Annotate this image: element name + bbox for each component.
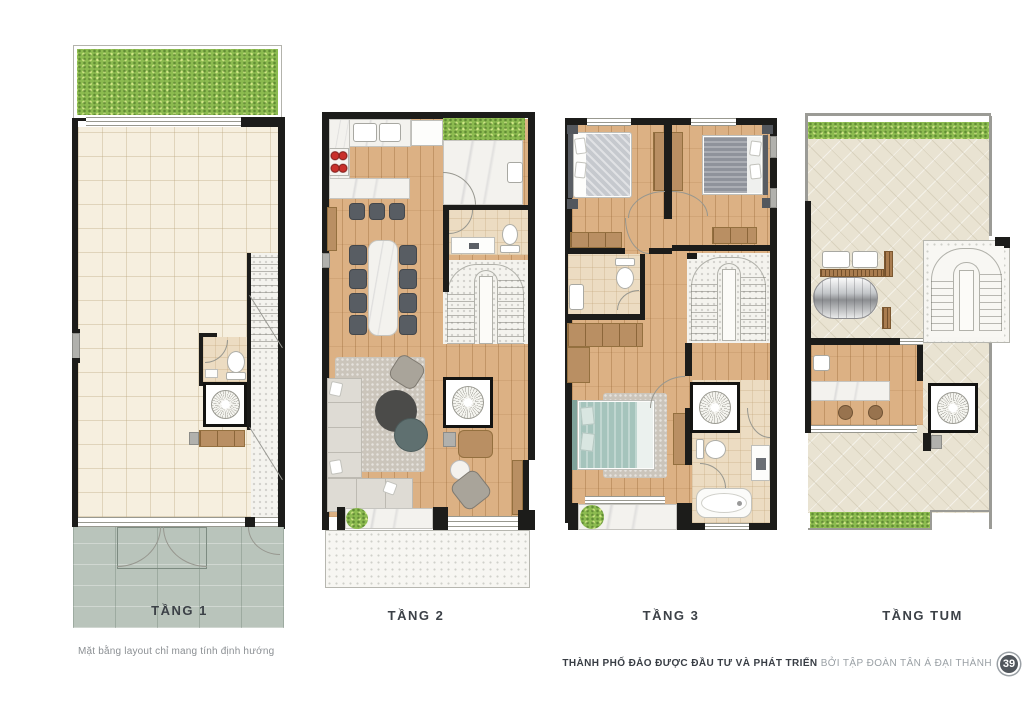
nightstand: [567, 125, 578, 134]
stool: [868, 405, 883, 420]
toilet-tank: [500, 245, 520, 253]
wall: [199, 333, 203, 386]
wall: [687, 253, 697, 259]
parapet: [808, 528, 930, 530]
wall: [72, 358, 80, 363]
drawer-chest: [570, 232, 622, 248]
window-marker: [189, 432, 199, 445]
tub-drain: [737, 501, 742, 506]
bed-duvet: [586, 134, 630, 196]
laundry-sink-icon: [507, 162, 523, 183]
toilet-icon: [227, 351, 245, 373]
fan-icon: [452, 386, 484, 419]
floor-label-tang-tum: TẦNG TUM: [830, 608, 1015, 623]
stair-treads: [447, 290, 474, 344]
floor-label-tang-2: TẦNG 2: [316, 608, 516, 623]
bar-counter: [811, 381, 890, 401]
wall: [805, 338, 900, 345]
hedge-strip: [808, 122, 989, 139]
hedge-strip: [810, 512, 930, 528]
disclaimer-text: Mặt bằng layout chỉ mang tính định hướng: [78, 646, 274, 657]
page-number-badge: 39: [998, 653, 1020, 675]
bar-stool: [349, 203, 365, 220]
wall-center: [664, 118, 672, 219]
window-marker: [443, 432, 456, 447]
fan-icon: [699, 391, 731, 424]
nightstand: [567, 199, 578, 209]
dining-chair: [399, 245, 417, 265]
wall-right: [278, 118, 285, 529]
floorplan-tang-2: [322, 112, 535, 592]
window-marker: [770, 188, 777, 208]
wall: [433, 507, 448, 530]
kitchen-sink-icon: [353, 123, 377, 142]
wash-sink-icon: [852, 251, 878, 268]
vanity-counter: [751, 445, 770, 481]
nightstand: [762, 125, 773, 134]
shelf: [884, 251, 893, 277]
floor-label-tang-3: TẦNG 3: [565, 608, 777, 623]
credit-line: THÀNH PHỐ ĐẢO ĐƯỢC ĐẦU TƯ VÀ PHÁT TRIỂN …: [520, 658, 992, 669]
bench: [458, 430, 493, 458]
parapet: [930, 510, 991, 512]
wall: [443, 260, 449, 292]
stair-landing: [722, 269, 736, 341]
tv-cabinet: [512, 460, 523, 515]
parapet: [989, 343, 992, 529]
pillow: [574, 137, 587, 154]
stair-landing: [479, 276, 493, 344]
dining-chair: [399, 293, 417, 313]
plant-icon: [580, 505, 604, 529]
credit-bold: THÀNH PHỐ ĐẢO ĐƯỢC ĐẦU TƯ VÀ PHÁT TRIỂN: [562, 658, 817, 669]
wall-right: [528, 118, 535, 460]
dining-chair: [349, 315, 367, 335]
window-band: [811, 425, 917, 433]
wall: [245, 517, 255, 527]
planter-strip: [443, 118, 525, 140]
skylight-fan-box: [203, 382, 247, 427]
kitchen-cabinet: [411, 120, 443, 146]
bathtub-icon: [696, 488, 752, 518]
plant-icon: [346, 508, 368, 529]
stair-treads: [741, 271, 766, 341]
grass-lawn: [77, 49, 278, 115]
skylight-fan-box: [690, 382, 740, 433]
stair-treads: [498, 278, 524, 344]
balcony-sliding-door: [585, 496, 665, 504]
headboard: [763, 135, 768, 195]
window: [705, 523, 749, 530]
bar-stool: [369, 203, 385, 220]
wall: [565, 314, 645, 320]
dining-chair: [399, 315, 417, 335]
pillow: [329, 459, 343, 475]
wall: [677, 503, 692, 530]
brochure-page: { "page": {"width": 1024, "height": 712,…: [0, 0, 1024, 712]
parapet: [989, 116, 992, 236]
parapet: [805, 113, 991, 116]
wall: [685, 343, 692, 376]
bar-stool: [389, 203, 405, 220]
kitchen-sink-icon: [379, 123, 401, 142]
pillow: [574, 161, 587, 178]
stair-treads: [691, 283, 717, 341]
drawer-chest: [712, 227, 757, 244]
stair-treads: [980, 272, 1002, 331]
stool: [838, 405, 853, 420]
window-marker: [322, 253, 330, 268]
window: [587, 118, 631, 126]
wardrobe: [567, 323, 643, 347]
sink-icon: [569, 284, 584, 310]
toilet-tank: [696, 439, 704, 459]
side-cabinet: [327, 207, 337, 251]
credit-light: BỞI TẬP ĐOÀN TÂN Á ĐẠI THÀNH: [821, 658, 992, 669]
wall: [72, 517, 78, 527]
wall-top: [322, 112, 443, 119]
pillow: [749, 140, 762, 156]
toilet-icon: [616, 267, 634, 289]
wash-sink-icon: [822, 251, 850, 268]
dining-chair: [399, 269, 417, 289]
dining-chair: [349, 293, 367, 313]
bed-fold: [637, 402, 653, 468]
dining-chair: [349, 245, 367, 265]
wall: [568, 503, 578, 530]
dining-table: [368, 240, 398, 336]
floorplan-tang-tum: [805, 113, 1012, 545]
fan-icon: [937, 392, 969, 424]
window-marker: [72, 333, 80, 359]
pillow: [749, 163, 762, 179]
window-marker: [770, 136, 777, 158]
dining-chair: [349, 269, 367, 289]
balcony: [325, 530, 530, 588]
fan-icon: [211, 390, 240, 419]
wall: [917, 345, 923, 381]
front-sliding-door: [86, 117, 241, 126]
vanity-counter: [451, 237, 495, 254]
wall: [923, 433, 931, 451]
toilet-tank: [226, 372, 246, 380]
wall: [649, 248, 672, 254]
balcony-sliding-door: [448, 516, 518, 527]
wall: [672, 245, 777, 251]
stair-treads: [931, 280, 953, 331]
skylight-fan-box: [928, 383, 978, 433]
wall: [518, 510, 535, 530]
wardrobe: [567, 347, 590, 383]
toilet-tank: [615, 258, 635, 266]
shelf: [882, 307, 891, 329]
wall-right: [770, 125, 777, 523]
water-tank-icon: [813, 277, 878, 319]
understair-cabinet: [199, 430, 245, 447]
front-garden-frame: [73, 45, 282, 119]
floorplan-tang-1: [72, 45, 287, 630]
skylight-fan-box: [443, 377, 493, 428]
stove-icon: [329, 148, 349, 176]
sink-icon: [813, 355, 830, 371]
window-marker: [931, 435, 942, 449]
wall: [337, 507, 345, 530]
toilet-icon: [705, 440, 726, 459]
window: [691, 118, 736, 126]
parapet: [930, 510, 932, 530]
bed-duvet: [704, 137, 747, 193]
coffee-table: [394, 418, 428, 452]
wall: [640, 254, 645, 320]
floor-label-tang-1: TẦNG 1: [72, 603, 287, 618]
basin-icon: [469, 243, 479, 249]
wash-counter: [820, 269, 884, 277]
toilet-icon: [502, 224, 518, 245]
basin-icon: [756, 458, 766, 470]
kitchen-island: [329, 178, 410, 199]
door-threshold: [900, 338, 923, 345]
stair-landing: [959, 270, 974, 331]
pillow: [580, 432, 595, 451]
floorplan-tang-3: [565, 118, 777, 535]
wc-shelf: [205, 369, 218, 378]
pillow: [580, 406, 595, 425]
